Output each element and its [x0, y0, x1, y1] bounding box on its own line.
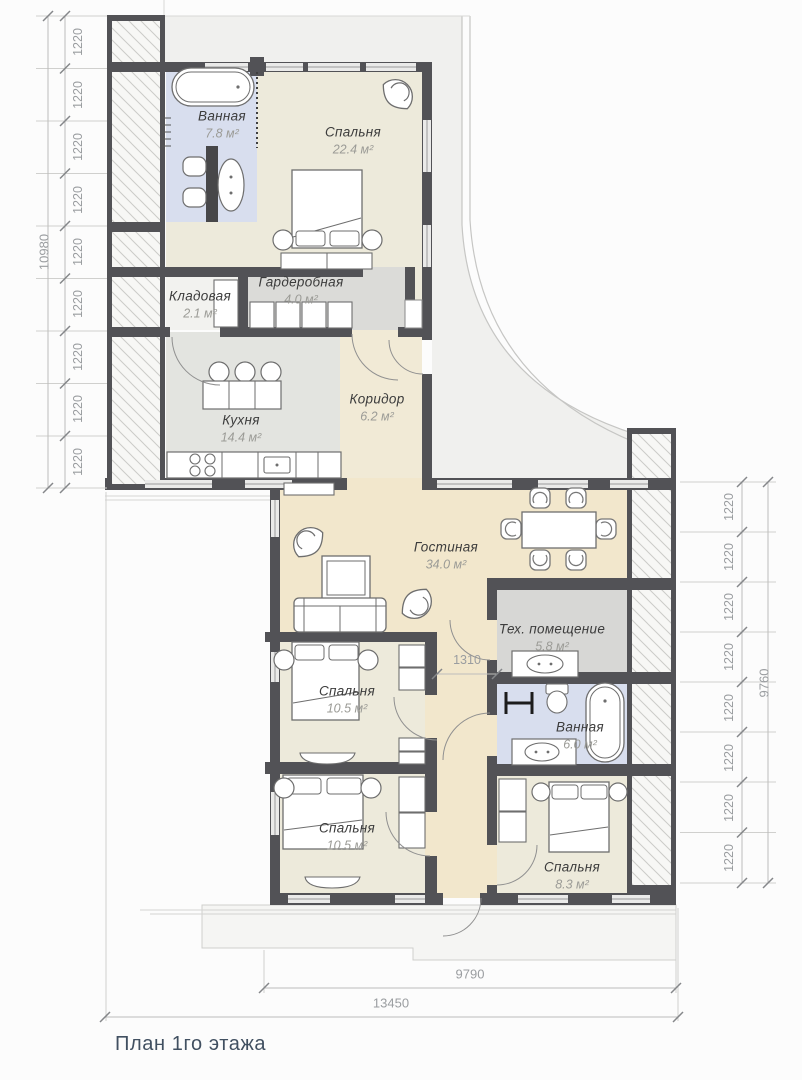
- sink-icon: [264, 457, 290, 473]
- corridor-niche: [405, 300, 422, 328]
- room-label-tech: Тех. помещение5.8 м²: [499, 620, 605, 655]
- dim-segment-label: 1220: [722, 744, 736, 772]
- dim-bottom-outer: 13450: [373, 996, 409, 1011]
- wardrobe-cells-low-right: [499, 779, 526, 842]
- room-label-corridor: Коридор6.2 м²: [349, 390, 404, 425]
- kitchen-counter: [167, 452, 341, 478]
- room-label-storage: Кладовая2.1 м²: [169, 287, 231, 322]
- room-label-bedroom-top: Спальня22.4 м²: [325, 123, 381, 158]
- dim-segment-label: 1220: [71, 343, 85, 371]
- exterior-wall-right: [627, 428, 676, 903]
- dim-bottom-inner: 9790: [456, 967, 485, 982]
- dim-left-total: 10980: [37, 234, 52, 270]
- dim-segment-label: 1220: [71, 291, 85, 319]
- floor-plan: Ванная7.8 м² Спальня22.4 м² Гардеробная4…: [0, 0, 802, 1080]
- floor-plan-drawing: [0, 0, 802, 1080]
- wardrobe-cells-low-left: [399, 777, 425, 848]
- dim-segment-label: 1220: [71, 81, 85, 109]
- dim-segment-label: 1220: [722, 844, 736, 872]
- dim-hall-width: 1310: [453, 653, 481, 667]
- room-label-kitchen: Кухня14.4 м²: [221, 411, 262, 446]
- dim-segment-label: 1220: [722, 593, 736, 621]
- dim-segment-label: 1220: [722, 644, 736, 672]
- dim-segment-label: 1220: [722, 794, 736, 822]
- dim-segment-label: 1220: [71, 395, 85, 423]
- room-label-living: Гостиная34.0 м²: [414, 538, 478, 573]
- washer-icon: [512, 651, 578, 677]
- dim-segment-label: 1220: [722, 543, 736, 571]
- room-label-bedroom-low-right: Спальня8.3 м²: [544, 858, 600, 893]
- sofa-icon: [294, 598, 386, 632]
- room-label-bathroom-low: Ванная6.0 м²: [556, 718, 604, 753]
- room-label-bathroom-top: Ванная7.8 м²: [198, 107, 246, 142]
- tv-stand-icon: [322, 556, 370, 600]
- room-label-bedroom-low-left: Спальня10.5 м²: [319, 819, 375, 854]
- kitchen-island-icon: [203, 362, 281, 409]
- toilet-icon-low: [546, 684, 568, 713]
- dim-segment-label: 1220: [722, 694, 736, 722]
- bathtub-icon: [172, 68, 254, 106]
- dim-segment-label: 1220: [71, 186, 85, 214]
- dim-segment-label: 1220: [71, 133, 85, 161]
- room-label-bedroom-mid: Спальня10.5 м²: [319, 682, 375, 717]
- dim-segment-label: 1220: [71, 448, 85, 476]
- dim-segment-label: 1220: [71, 28, 85, 56]
- exterior-wall-left: [107, 15, 165, 490]
- dim-segment-label: 1220: [71, 238, 85, 266]
- dim-right-total: 9760: [757, 669, 772, 698]
- dim-segment-label: 1220: [722, 493, 736, 521]
- page-title: План 1го этажа: [115, 1033, 266, 1056]
- room-label-wardrobe: Гардеробная4.0 м²: [259, 273, 344, 308]
- console-table: [284, 483, 334, 495]
